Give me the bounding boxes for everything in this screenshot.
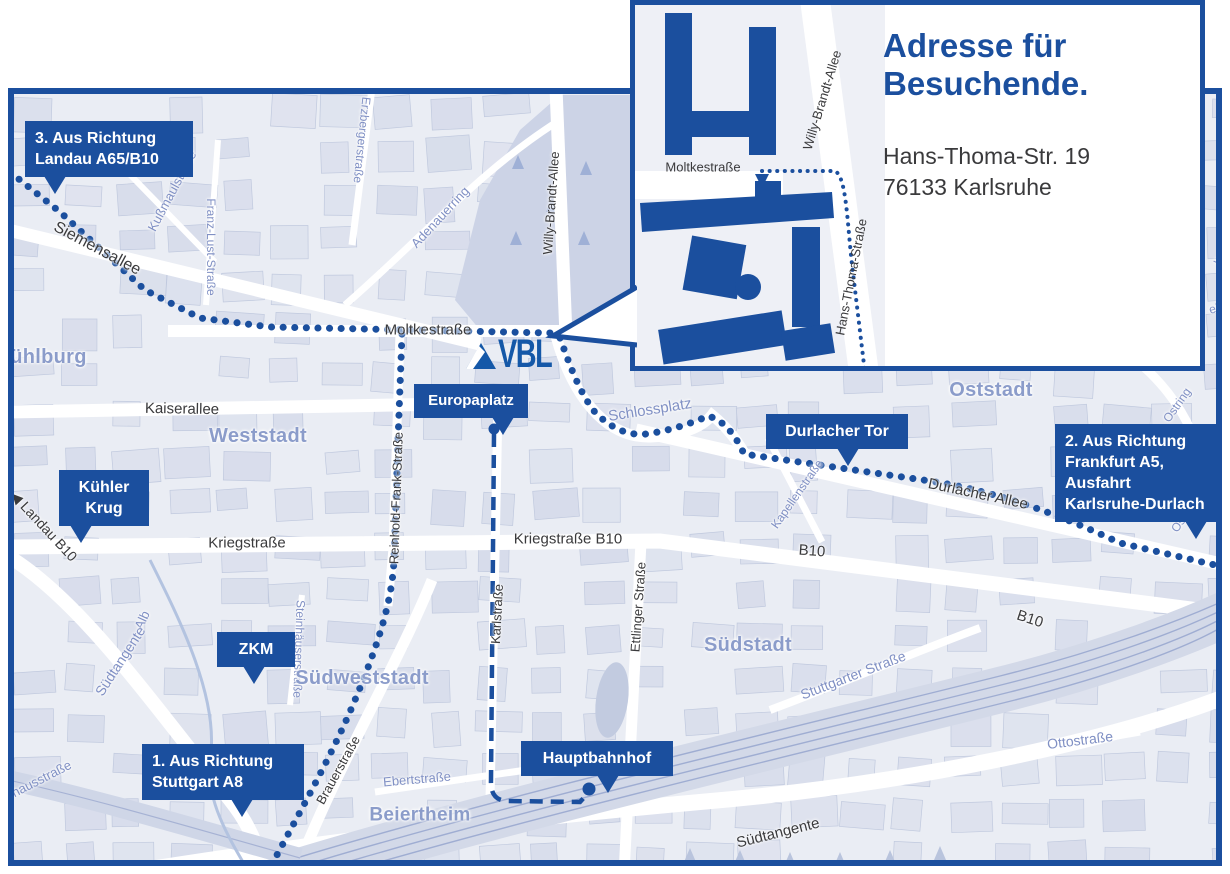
inset-address-panel: MoltkestraßeWilly-Brandt-AlleeHans-Thoma…	[630, 0, 1205, 371]
callout-line: ZKM	[227, 639, 285, 660]
callout-tail	[44, 176, 66, 194]
callout-tail	[70, 525, 92, 543]
map-label-brauerstrasse: Brauerstraße	[314, 734, 362, 807]
map-label-oststadt: Oststadt	[949, 380, 1033, 400]
callout-line: Karlsruhe-Durlach	[1065, 494, 1217, 515]
callout-tail	[597, 775, 619, 793]
map-label-fragment-ein: ein	[1208, 300, 1222, 316]
address-line-city: 76133 Karlsruhe	[883, 172, 1090, 203]
map-label-b10-west: B10	[798, 543, 826, 560]
map-label-beiertheim: Beiertheim	[369, 806, 470, 825]
callout-route-3: 3. Aus RichtungLandau A65/B10	[25, 121, 193, 177]
callout-tail	[837, 448, 859, 466]
map-label-suedtangente-west: Südtangente	[93, 624, 148, 698]
callout-line: Durlacher Tor	[776, 421, 898, 442]
callout-line: Stuttgart A8	[152, 772, 294, 793]
map-label-stuttgarter-strasse: Stuttgarter Straße	[799, 649, 908, 702]
map-label-b10-east: B10	[1015, 608, 1045, 631]
map-label-kaiserallee: Kaiserallee	[145, 401, 219, 417]
poi-hauptbahnhof-stop	[583, 783, 596, 796]
inset-label-moltkestrasse: Moltkestraße	[665, 161, 740, 174]
map-label-adenauerring: Adenauerring	[409, 184, 472, 250]
callout-hauptbahnhof: Hauptbahnhof	[521, 741, 673, 776]
map-label-ebertstrasse: Ebertstraße	[383, 770, 452, 789]
map-label-franz-lust-strasse: Franz-Lust-Straße	[205, 198, 217, 295]
callout-route-1: 1. Aus RichtungStuttgart A8	[142, 744, 304, 800]
callout-line: Ausfahrt	[1065, 473, 1217, 494]
callout-durlacher-tor: Durlacher Tor	[766, 414, 908, 449]
map-label-karlstrasse: Karlstraße	[489, 584, 505, 645]
map-label-schlossplatz: Schlossplatz	[607, 396, 693, 424]
map-label-fragment-we: we	[1210, 247, 1222, 266]
map-label-kriegstrasse-b10: Kriegstraße B10	[514, 532, 622, 547]
inset-address: Hans-Thoma-Str. 19 76133 Karlsruhe	[883, 141, 1090, 203]
callout-europaplatz: Europaplatz	[414, 384, 528, 418]
map-label-kapellenstrasse: Kapellenstraße	[769, 457, 825, 530]
callout-tail	[243, 666, 265, 684]
inset-pointer-tail	[540, 240, 637, 380]
inset-title: Adresse für Besuchende.	[883, 27, 1183, 104]
callout-kuehler-krug: KühlerKrug	[59, 470, 149, 526]
map-label-ottostrasse: Ottostraße	[1046, 729, 1113, 751]
callout-line: Krug	[69, 498, 139, 519]
map-label-muehlburg: Mühlburg	[8, 347, 87, 367]
callout-tail	[492, 417, 514, 435]
map-label-ettlinger-strasse: Ettlinger Straße	[628, 561, 647, 652]
map-label-erzbergerstrasse: Erzbergerstraße	[352, 96, 373, 183]
callout-line: Hauptbahnhof	[531, 748, 663, 769]
vbl-triangle-icon	[464, 341, 498, 371]
karlsruhe-directions-map: SiemensalleeMoltkestraßeKaiseralleeKrieg…	[0, 0, 1230, 874]
map-label-durlacher-allee: Durlacher Allee	[927, 476, 1030, 512]
map-label-suedweststadt: Südweststadt	[295, 668, 429, 688]
callout-line: 2. Aus Richtung	[1065, 431, 1217, 452]
map-label-reinhold-frank-strasse: Reinhold-Frank-Straße	[387, 432, 405, 565]
map-label-ostring-nord: Ostring	[1161, 386, 1193, 425]
callout-tail	[1185, 521, 1207, 539]
map-label-suedtangente-sued: Südtangente	[735, 815, 821, 850]
callout-line: Europaplatz	[424, 391, 518, 411]
callout-zkm: ZKM	[217, 632, 295, 667]
map-label-siemensallee: Siemensallee	[51, 219, 143, 278]
inset-site-map: MoltkestraßeWilly-Brandt-AlleeHans-Thoma…	[635, 5, 885, 366]
callout-line: 3. Aus Richtung	[35, 128, 183, 149]
map-label-moltkestrasse: Moltkestraße	[385, 323, 472, 338]
map-label-weststadt: Weststadt	[209, 426, 307, 446]
callout-tail	[231, 799, 253, 817]
callout-line: Frankfurt A5,	[1065, 452, 1217, 473]
map-label-pulverhausstrasse: Pulverhausstraße	[8, 758, 73, 816]
callout-line: Kühler	[69, 477, 139, 498]
map-label-kriegstrasse: Kriegstraße	[208, 536, 286, 551]
callout-line: Landau A65/B10	[35, 149, 183, 170]
callout-line: 1. Aus Richtung	[152, 751, 294, 772]
map-label-suedstadt: Südstadt	[704, 635, 792, 655]
callout-route-2: 2. Aus RichtungFrankfurt A5,AusfahrtKarl…	[1055, 424, 1222, 522]
address-line-street: Hans-Thoma-Str. 19	[883, 141, 1090, 172]
